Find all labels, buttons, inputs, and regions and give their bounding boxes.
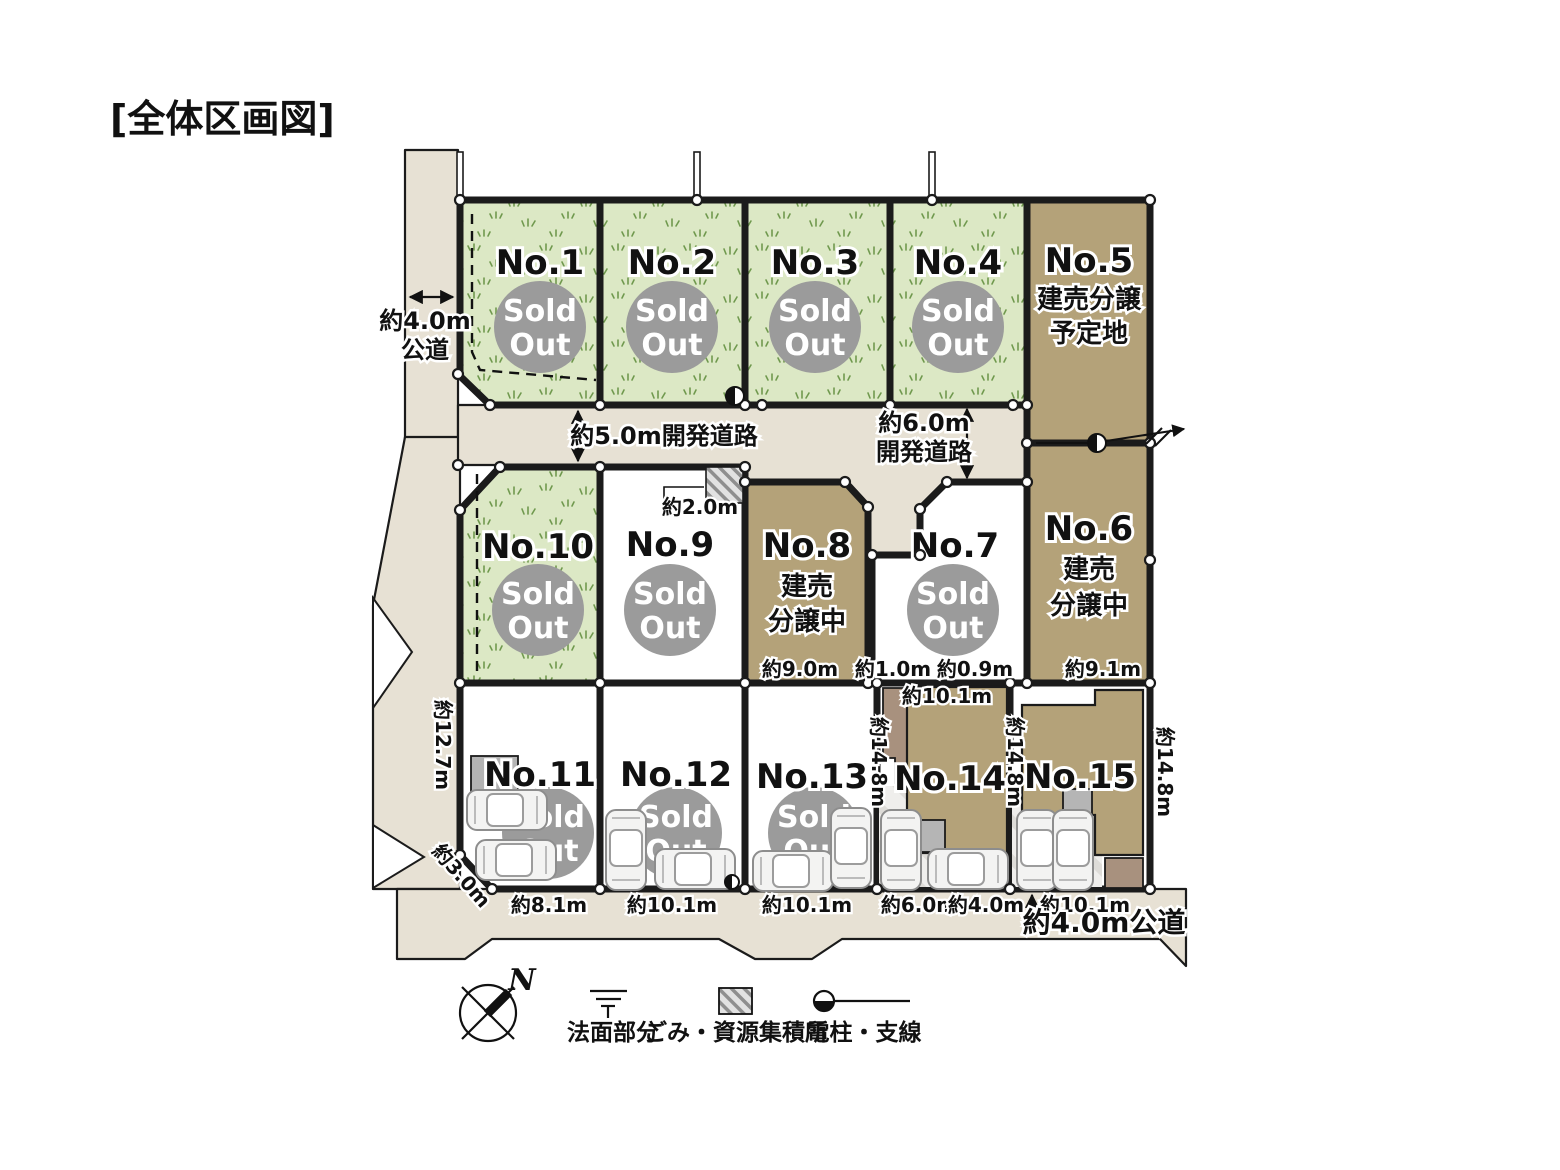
sold-out-text: Sold	[639, 800, 713, 835]
road-label-west: 約4.0m	[379, 307, 471, 335]
vertex-marker	[453, 369, 463, 379]
lot-label-no5: No.5	[1045, 241, 1133, 281]
sold-out-text: Sold	[633, 577, 707, 612]
building-annex-no15	[1105, 858, 1143, 888]
vertex-marker	[1145, 884, 1155, 894]
lot-label-no3: No.3	[771, 243, 859, 283]
road-label-west: 公道	[401, 336, 449, 364]
garbage-symbol-icon	[719, 988, 752, 1014]
lot-label-no12: No.12	[620, 755, 732, 795]
dim-label: 約14.8m	[1153, 727, 1177, 817]
dim-label: 約4.0m	[948, 893, 1024, 917]
sold-out-text: Sold	[501, 577, 575, 612]
vertex-marker	[455, 505, 465, 515]
dim-label: 約10.1m	[627, 893, 717, 917]
lot-note-no6: 建売	[1063, 555, 1115, 585]
road-label-dev6: 約6.0m	[878, 409, 970, 437]
sold-out-badge: SoldOut	[907, 564, 999, 656]
sold-out-badge: SoldOut	[769, 281, 861, 373]
legend-garbage-label: ごみ・資源集積所	[644, 1019, 828, 1046]
dim-label: 約1.0m	[855, 657, 931, 681]
lot-note-no8: 建売	[781, 572, 833, 602]
vertex-marker	[740, 678, 750, 688]
vertex-marker	[927, 195, 937, 205]
vertex-marker	[1145, 195, 1155, 205]
lot-label-no4: No.4	[914, 243, 1002, 283]
vertex-marker	[1145, 678, 1155, 688]
car-icon	[928, 849, 1008, 889]
lot-plan-page: SoldOut SoldOut SoldOut SoldOut SoldOut …	[0, 0, 1560, 1170]
sold-out-badge: SoldOut	[624, 564, 716, 656]
dim-label: 約2.0m	[662, 495, 738, 519]
dim-label: 約9.1m	[1065, 657, 1141, 681]
vertex-marker	[595, 400, 605, 410]
vertex-marker	[595, 884, 605, 894]
vertex-marker	[867, 550, 877, 560]
sold-out-text: Out	[927, 328, 988, 363]
dim-label: 約14.8m	[867, 717, 891, 807]
vertex-marker	[455, 195, 465, 205]
sold-out-text: Out	[639, 611, 700, 646]
sold-out-text: Sold	[916, 577, 990, 612]
vertex-marker	[1022, 400, 1032, 410]
dim-label: 約9.0m	[762, 657, 838, 681]
lot-label-no1: No.1	[496, 243, 584, 283]
lot-note-no6: 分譲中	[1050, 590, 1128, 621]
compass-icon: N	[460, 963, 537, 1041]
road-label-dev6: 開発道路	[876, 438, 973, 466]
vertex-marker	[840, 477, 850, 487]
car-icon	[1017, 810, 1057, 890]
dim-label: 約0.9m	[937, 657, 1013, 681]
vertex-marker	[740, 477, 750, 487]
vertex-marker	[455, 678, 465, 688]
car-icon	[655, 849, 735, 889]
lot-label-no10: No.10	[482, 527, 594, 567]
legend-pole-label: 電柱・支線	[807, 1019, 922, 1046]
sold-out-text: Sold	[635, 294, 709, 329]
sold-out-badge: SoldOut	[492, 564, 584, 656]
sold-out-badge: SoldOut	[626, 281, 718, 373]
page-title: [全体区画図]	[110, 97, 335, 141]
sold-out-text: Out	[922, 611, 983, 646]
car-icon	[476, 840, 556, 880]
dim-label: 約6.0m	[881, 893, 957, 917]
lot-label-no2: No.2	[628, 243, 716, 283]
vertex-marker	[1022, 438, 1032, 448]
car-icon	[831, 808, 871, 888]
lot-note-no5: 予定地	[1050, 318, 1128, 349]
dim-label: 約14.8m	[1003, 717, 1027, 807]
vertex-marker	[1008, 400, 1018, 410]
vertex-marker	[1022, 477, 1032, 487]
site-plan-svg: SoldOut SoldOut SoldOut SoldOut SoldOut …	[0, 0, 1560, 1170]
car-icon	[881, 810, 921, 890]
sold-out-text: Sold	[778, 294, 852, 329]
lot-label-no7: No.7	[911, 526, 999, 566]
vertex-marker	[595, 462, 605, 472]
utility-pole-icon	[726, 387, 744, 405]
west-road	[405, 150, 458, 460]
north-label: N	[507, 963, 537, 998]
lot-label-no14: No.14	[894, 759, 1006, 799]
vertex-marker	[453, 460, 463, 470]
lot-label-no13: No.13	[756, 757, 868, 797]
sold-out-text: Out	[641, 328, 702, 363]
vertex-marker	[915, 550, 925, 560]
sold-out-badge: SoldOut	[494, 281, 586, 373]
sold-out-badge: SoldOut	[912, 281, 1004, 373]
dim-label: 約8.1m	[511, 893, 587, 917]
vertex-marker	[595, 678, 605, 688]
vertex-marker	[757, 400, 767, 410]
slope-symbol-icon	[590, 991, 627, 1018]
lot-label-no6: No.6	[1045, 509, 1133, 549]
car-icon	[467, 790, 547, 830]
sold-out-text: Out	[507, 611, 568, 646]
lot-note-no8: 分譲中	[768, 606, 846, 637]
car-icon	[1053, 810, 1093, 890]
lot-label-no8: No.8	[763, 526, 851, 566]
road-label-dev5: 約5.0m開発道路	[570, 422, 759, 450]
dim-label: 約10.1m	[902, 684, 992, 708]
vertex-marker	[740, 462, 750, 472]
sold-out-text: Sold	[503, 294, 577, 329]
vertex-marker	[863, 502, 873, 512]
sold-out-text: Sold	[921, 294, 995, 329]
vertex-marker	[942, 477, 952, 487]
legend: N 法面部分 ごみ・資源集積所 電柱・支線	[460, 963, 922, 1046]
vertex-marker	[915, 504, 925, 514]
car-icon	[606, 810, 646, 890]
vertex-marker	[485, 400, 495, 410]
lot-label-no15: No.15	[1024, 757, 1136, 797]
lot-note-no5: 建売分譲	[1037, 284, 1142, 315]
car-icon	[753, 851, 833, 891]
vertex-marker	[495, 462, 505, 472]
vertex-marker	[740, 884, 750, 894]
utility-pole-icon	[725, 875, 739, 889]
pole-symbol-icon	[814, 991, 910, 1011]
vertex-marker	[692, 195, 702, 205]
sold-out-text: Out	[784, 328, 845, 363]
dim-label: 約12.7m	[431, 700, 455, 790]
lot-label-no9: No.9	[626, 525, 714, 565]
dim-label: 約10.1m	[762, 893, 852, 917]
vertex-marker	[1022, 678, 1032, 688]
sold-out-text: Out	[509, 328, 570, 363]
vertex-marker	[1145, 555, 1155, 565]
road-label-south: 約4.0m公道	[1023, 906, 1186, 939]
